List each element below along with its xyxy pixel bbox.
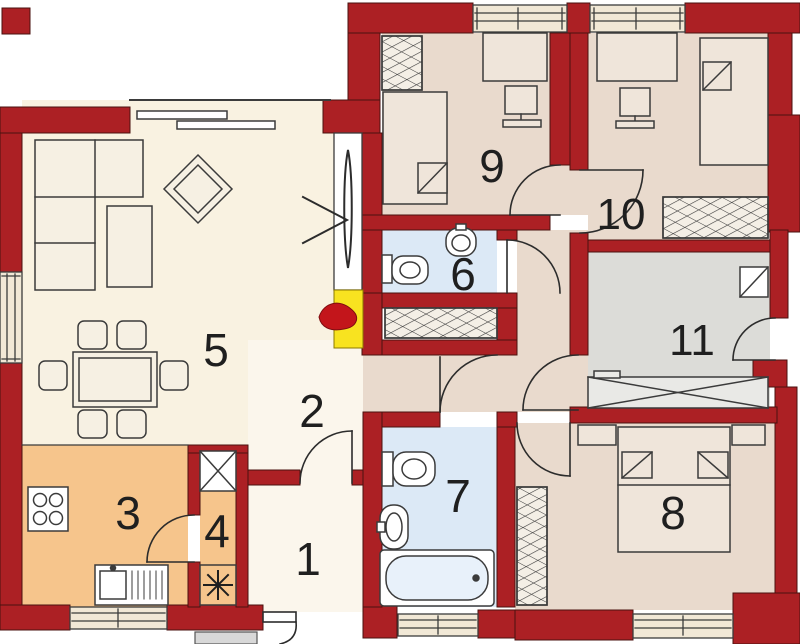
floor-plan-image: 1 2 3 4 5 6 7 8 9 10 11	[0, 0, 800, 644]
floor-plan-page: 1 2 3 4 5 6 7 8 9 10 11	[0, 0, 800, 644]
wardrobe-hatch	[517, 487, 547, 605]
wall-bottom-5	[515, 610, 633, 640]
wall-room10-closet11	[588, 240, 770, 252]
room-label-3: 3	[115, 487, 141, 539]
wall-top-2	[685, 3, 800, 33]
window-left	[0, 272, 22, 363]
desk-icon	[483, 33, 547, 81]
room-label-10: 10	[597, 190, 646, 239]
chair-icon	[39, 361, 67, 390]
window-top-room9	[473, 5, 567, 32]
toilet-icon	[393, 452, 435, 486]
wall-top-left	[0, 107, 130, 133]
toilet-tank	[382, 255, 392, 283]
wall-bottom-1	[0, 605, 70, 630]
wall-west-closetniche	[362, 293, 382, 355]
nightstand-icon	[578, 425, 616, 445]
wall-pantry-east	[236, 445, 248, 607]
wall-right-upper	[768, 33, 792, 117]
wall-bath7-west	[363, 412, 382, 607]
hall-closet	[385, 308, 497, 338]
door-entrance	[263, 612, 296, 644]
wall-corridor-closet11	[570, 233, 588, 355]
desk-chair-icon	[616, 121, 654, 128]
window-bath7	[398, 614, 478, 636]
wall-closetniche-bottom	[382, 340, 517, 355]
wall-right-closet	[770, 230, 788, 318]
ottoman-icon	[107, 206, 152, 287]
wardrobe-handle	[594, 371, 620, 378]
nightstand-icon	[732, 425, 765, 445]
wall-west-room9	[362, 133, 382, 293]
window-top-room10	[590, 5, 685, 32]
wall-bottom-4	[478, 610, 518, 638]
room-label-4: 4	[204, 505, 230, 557]
wardrobe-hatch	[663, 197, 768, 238]
chair-icon	[78, 321, 107, 349]
bed-icon	[700, 38, 768, 165]
tap-icon	[377, 522, 385, 532]
wall-hall-divider-stub	[352, 470, 363, 485]
tap-icon	[456, 224, 466, 230]
shelf-icon	[137, 111, 227, 119]
wardrobe-hatch	[382, 36, 422, 90]
room-label-9: 9	[479, 140, 505, 192]
monitor-icon	[620, 88, 650, 116]
wall-mid-jog	[323, 100, 380, 133]
window-bedroom8	[633, 614, 733, 638]
chair-icon	[78, 410, 107, 438]
room-label-8: 8	[660, 487, 686, 539]
room-label-1: 1	[295, 533, 321, 585]
window-kitchen	[70, 607, 167, 629]
chair-icon	[117, 321, 146, 349]
wall-bottom-2	[167, 605, 263, 630]
chair-icon	[160, 361, 188, 390]
flue-icon	[344, 150, 352, 268]
wall-corridor-room10	[570, 33, 588, 170]
detached-pier	[2, 8, 30, 34]
corridor-finger-top	[550, 165, 588, 215]
wall-left-lower	[0, 363, 22, 630]
wall-right-bedroom8	[775, 387, 797, 593]
wall-kitchen-pantry-lower	[188, 562, 200, 607]
chair-icon	[117, 410, 146, 438]
room-label-2: 2	[299, 385, 325, 437]
monitor-icon	[505, 86, 537, 114]
corridor-band	[363, 355, 588, 412]
wall-closet11-bedroom8	[570, 407, 777, 423]
wall-bath7-top-jamb	[497, 412, 517, 427]
room-label-7: 7	[445, 470, 471, 522]
wall-bath6-jamb	[497, 230, 517, 240]
desk-icon	[597, 33, 677, 81]
wall-bottom-right-corner	[733, 593, 800, 644]
snowflake-icon	[204, 571, 232, 599]
kitchen-tap-icon	[111, 566, 116, 571]
wardrobe-hatch	[385, 308, 497, 338]
stove-icon	[28, 487, 68, 531]
porch-step	[195, 632, 257, 644]
wall-top-1	[348, 3, 473, 33]
wall-room9-corridor	[550, 33, 570, 165]
wall-hall-divider	[248, 470, 300, 485]
desk-chair-icon	[503, 120, 541, 127]
toilet-tank	[382, 452, 393, 486]
wall-left-upper	[0, 133, 22, 272]
shelf-icon	[177, 121, 275, 129]
dining-table-icon	[73, 352, 157, 407]
room-label-11: 11	[669, 316, 715, 365]
wall-bottom-3	[363, 605, 397, 638]
wall-kitchen-pantry-upper	[188, 445, 200, 515]
room-label-5: 5	[203, 324, 229, 376]
drain-icon	[473, 575, 479, 581]
wall-bath7-bedroom8	[497, 427, 515, 607]
wall-right-mid	[768, 115, 800, 232]
room-label-6: 6	[450, 248, 476, 300]
wall-top-pier	[567, 3, 590, 33]
toilet-icon	[392, 256, 428, 284]
